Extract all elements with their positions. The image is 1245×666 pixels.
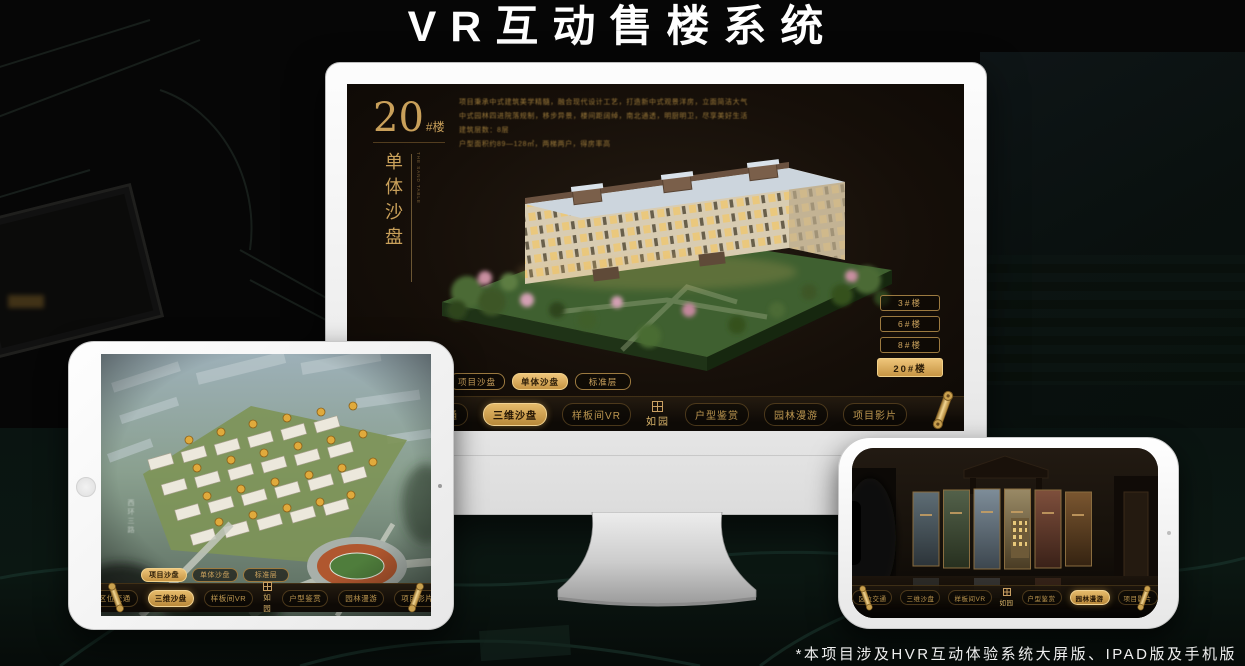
scroll-handle-icon[interactable] [106, 582, 126, 613]
view-tab-group: 项目沙盘 单体沙盘 标准层 [449, 373, 631, 390]
nav-item-3d-sandbox[interactable]: 三维沙盘 [900, 590, 940, 605]
description-line: 中式园林四进院落规制，移步异景，楼间距阔绰，南北通透，明厨明卫，尽享美好生活 [459, 110, 833, 124]
camera-icon [438, 484, 442, 488]
tab-single-sandbox[interactable]: 单体沙盘 [192, 568, 238, 582]
floor-button-6[interactable]: 6#楼 [880, 316, 940, 332]
scroll-handle-icon[interactable] [930, 390, 956, 430]
phone-mockup: 区位交通 三维沙盘 样板间VR 如园 户型鉴赏 园林漫游 项目影片 [838, 437, 1179, 629]
footnote: *本项目涉及HVR互动体验系统大屏版、IPAD版及手机版 [796, 643, 1237, 664]
tablet-view-tab-group: 项目沙盘 单体沙盘 标准层 [141, 568, 289, 582]
description-line: 项目秉承中式建筑美学精髓，融合现代设计工艺，打造新中式观景洋房，立面简洁大气 [459, 96, 851, 110]
phone-screen: 区位交通 三维沙盘 样板间VR 如园 户型鉴赏 园林漫游 项目影片 [852, 448, 1158, 618]
camera-icon [1167, 531, 1171, 535]
description-line: 户型面积约89—128㎡，两梯两户，得房率高 [459, 138, 675, 152]
building-title-group: 单体沙盘 THE SAND TABLE [379, 152, 421, 284]
nav-item-showroom-vr[interactable]: 样板间VR [204, 590, 253, 607]
tab-project-sandbox[interactable]: 项目沙盘 [141, 568, 187, 582]
ruyuan-logo: 如园 [263, 582, 272, 614]
building-3d-view[interactable] [437, 152, 897, 374]
floor-button-3[interactable]: 3#楼 [880, 295, 940, 311]
tab-standard-floor[interactable]: 标准层 [243, 568, 289, 582]
nav-item-garden-roam[interactable]: 园林漫游 [764, 403, 828, 426]
scroll-handle-icon[interactable] [1136, 585, 1152, 611]
ruyuan-logo: 如园 [1000, 588, 1014, 607]
page-title: VR互动售楼系统 [0, 0, 1245, 54]
tab-standard-floor[interactable]: 标准层 [575, 373, 631, 390]
floor-button-8[interactable]: 8#楼 [880, 337, 940, 353]
tab-project-sandbox[interactable]: 项目沙盘 [449, 373, 505, 390]
nav-item-project-film[interactable]: 项目影片 [843, 403, 907, 426]
page: VR互动售楼系统 20#楼 单体沙盘 THE SAND TABLE 项目秉承中式… [0, 0, 1245, 666]
building-number-value: 20 [373, 95, 424, 141]
background-gold-plaque [8, 295, 44, 308]
floor-button-20[interactable]: 20#楼 [877, 358, 943, 377]
nav-item-unit-plans[interactable]: 户型鉴赏 [1022, 590, 1062, 605]
monitor-stand [552, 512, 762, 612]
ruyuan-seal-icon [652, 401, 663, 412]
tablet-mockup: 西环三路 项目沙盘 单体沙盘 标准层 区位交通 三维沙盘 样板间VR 如园 户型… [68, 341, 454, 630]
nav-item-unit-plans[interactable]: 户型鉴赏 [282, 590, 328, 607]
building-number: 20#楼 [373, 96, 445, 143]
tablet-navbar: 区位交通 三维沙盘 样板间VR 如园 户型鉴赏 园林漫游 项目影片 [101, 583, 431, 612]
nav-item-showroom-vr[interactable]: 样板间VR [562, 403, 631, 426]
ruyuan-seal-icon [1003, 588, 1011, 596]
ruyuan-logo-text: 如园 [263, 592, 272, 614]
scroll-handle-icon[interactable] [858, 585, 874, 611]
nav-item-unit-plans[interactable]: 户型鉴赏 [685, 403, 749, 426]
ruyuan-logo-text: 如园 [646, 413, 670, 428]
tab-single-sandbox[interactable]: 单体沙盘 [512, 373, 568, 390]
description-line: 建筑层数：8层 [459, 124, 539, 138]
building-title-en: THE SAND TABLE [416, 152, 421, 284]
building-number-suffix: #楼 [426, 120, 445, 134]
home-button[interactable] [76, 477, 96, 497]
floor-button-group: 3#楼 6#楼 8#楼 20#楼 [877, 295, 943, 377]
building-title: 单体沙盘 [379, 152, 405, 284]
ruyuan-seal-icon [263, 582, 272, 591]
nav-item-garden-roam[interactable]: 园林漫游 [1070, 590, 1110, 605]
road-label: 西环三路 [125, 499, 135, 535]
ruyuan-logo-text: 如园 [1000, 597, 1014, 607]
divider [411, 154, 412, 282]
background-photo-strip [980, 255, 1245, 385]
nav-item-showroom-vr[interactable]: 样板间VR [948, 590, 991, 605]
tablet-screen: 西环三路 项目沙盘 单体沙盘 标准层 区位交通 三维沙盘 样板间VR 如园 户型… [101, 354, 431, 616]
phone-navbar: 区位交通 三维沙盘 样板间VR 如园 户型鉴赏 园林漫游 项目影片 [852, 585, 1158, 609]
nav-item-3d-sandbox[interactable]: 三维沙盘 [483, 403, 547, 426]
scroll-handle-icon[interactable] [406, 582, 426, 613]
nav-item-garden-roam[interactable]: 园林漫游 [338, 590, 384, 607]
notch [852, 501, 861, 565]
ruyuan-logo: 如园 [646, 401, 670, 428]
building-description: 项目秉承中式建筑美学精髓，融合现代设计工艺，打造新中式观景洋房，立面简洁大气 中… [459, 96, 859, 152]
nav-item-3d-sandbox[interactable]: 三维沙盘 [148, 590, 194, 607]
